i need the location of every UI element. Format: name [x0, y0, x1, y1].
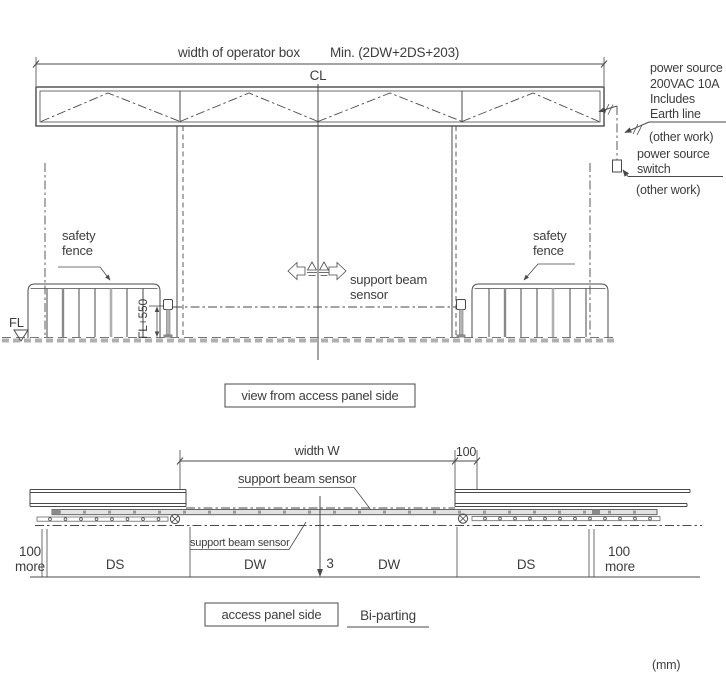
- plan-caption-text: access panel side: [222, 607, 322, 622]
- sensor-post-right: [457, 300, 466, 338]
- width-w-label: width W: [294, 443, 341, 458]
- fl-label: FL: [9, 315, 24, 330]
- beam-sensor-label-line2: sensor: [350, 287, 389, 302]
- door-leaf-icon: [319, 262, 329, 276]
- dim-dw-right: DW: [378, 557, 401, 572]
- plan-dimension-row: 100 more DS DW 3 DW DS 100 more: [15, 527, 700, 577]
- door-type-text: Bi-parting: [360, 608, 416, 623]
- power-source-note: power source 200VAC 10A Includes Earth l…: [650, 61, 723, 121]
- power-source-line4: Earth line: [650, 107, 701, 121]
- side-panel-right: [455, 490, 690, 507]
- dim-100-label: 100: [456, 445, 477, 459]
- margin-right-more: more: [605, 559, 635, 574]
- plan-caption: access panel side: [205, 603, 338, 626]
- dim-ds-right: DS: [517, 557, 536, 572]
- sensor-unit-icon: [458, 514, 467, 523]
- dim-gap-3: 3: [326, 556, 333, 571]
- floor-level-marker: FL: [9, 315, 28, 341]
- power-switch-line1: power source: [637, 147, 710, 161]
- safety-fence-right-label: safety fence: [524, 228, 575, 280]
- other-work-lower: (other work): [636, 183, 700, 197]
- sensor-head-icon: [457, 300, 466, 310]
- plan-sensor-label-upper: support beam sensor: [238, 471, 371, 510]
- margin-right-100: 100: [608, 544, 630, 559]
- power-switch-line2: switch: [637, 162, 671, 176]
- sensor-rail-left: [37, 517, 168, 521]
- side-panel-left: [30, 490, 186, 507]
- truss-brace: [462, 93, 599, 122]
- arrow-left-icon: [288, 263, 305, 280]
- dim-operator-box-label: width of operator box: [177, 45, 300, 60]
- other-work-upper: (other work): [649, 130, 713, 144]
- truss-brace: [318, 93, 462, 122]
- sensor-rail-right: [472, 517, 660, 521]
- gap-arrow-icon: [317, 569, 323, 577]
- drawing-page: width of operator box Min. (2DW+2DS+203)…: [0, 0, 726, 700]
- centerline-label: CL: [310, 68, 328, 83]
- plan-sensor-lower-text: support beam sensor: [190, 537, 290, 549]
- safety-fence-right: [472, 284, 608, 338]
- door-technical-drawing: width of operator box Min. (2DW+2DS+203)…: [0, 0, 726, 700]
- arrow-right-icon: [329, 263, 346, 280]
- support-beam: [52, 510, 657, 515]
- fence-left-line1: safety: [62, 228, 96, 243]
- elevation-caption-text: view from access panel side: [241, 388, 398, 403]
- truss-brace: [41, 93, 180, 122]
- truss-brace: [180, 93, 318, 122]
- fence-left-line2: fence: [62, 243, 93, 258]
- dim-ds-left: DS: [106, 557, 125, 572]
- plan-view: width W 100 support beam sensor: [15, 443, 702, 627]
- margin-left-100: 100: [19, 544, 41, 559]
- floor-line: [2, 338, 618, 341]
- power-source-line3: Includes: [650, 92, 695, 106]
- dim-operator-box-min: Min. (2DW+2DS+203): [330, 45, 459, 60]
- safety-fence-left-label: safety fence: [58, 228, 110, 280]
- power-source-line1: power source: [650, 61, 723, 75]
- door-jambs: [177, 126, 456, 338]
- door-motion-symbols: [288, 262, 346, 280]
- power-switch-symbol: [613, 160, 622, 172]
- door-type-label: Bi-parting: [347, 608, 429, 627]
- elevation-view: width of operator box Min. (2DW+2DS+203)…: [2, 45, 726, 407]
- sensor-head-icon: [164, 300, 173, 310]
- beam-height-label: FL+550: [136, 299, 150, 339]
- units-label: (mm): [652, 658, 680, 672]
- plan-sensor-upper-text: support beam sensor: [238, 471, 357, 486]
- elevation-caption: view from access panel side: [225, 384, 415, 407]
- dim-dw-left: DW: [244, 557, 267, 572]
- power-source-line2: 200VAC 10A: [650, 77, 720, 91]
- operator-box: [36, 87, 604, 126]
- margin-left-more: more: [15, 559, 45, 574]
- sensor-post-left: [164, 300, 173, 338]
- fence-right-line2: fence: [533, 243, 564, 258]
- door-leaf-icon: [307, 262, 317, 276]
- sensor-unit-icon: [170, 514, 179, 523]
- fence-right-line1: safety: [533, 228, 567, 243]
- beam-sensor-label-line1: support beam: [350, 272, 427, 287]
- plan-sensor-label-lower: support beam sensor: [190, 522, 306, 550]
- power-wiring: power source 200VAC 10A Includes Earth l…: [599, 61, 726, 197]
